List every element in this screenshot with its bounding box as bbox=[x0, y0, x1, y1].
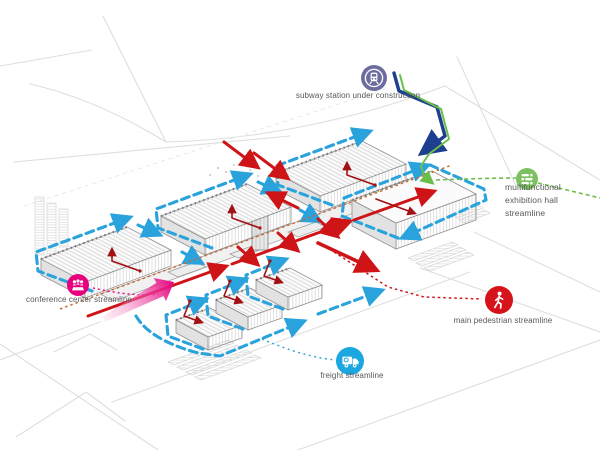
train-icon bbox=[361, 65, 387, 91]
conference-streamline-badge bbox=[67, 274, 89, 296]
freight-streamline-label: freight streamline bbox=[272, 371, 432, 380]
pedestrian-streamline-label: main pedestrian streamline bbox=[423, 316, 583, 325]
conference-streamline-label: conference center streamline bbox=[0, 295, 159, 304]
audience-icon bbox=[67, 274, 89, 296]
diagram-canvas bbox=[0, 0, 600, 450]
pedestrian-icon bbox=[485, 286, 513, 314]
subway-station-badge bbox=[361, 65, 387, 91]
tree-dots bbox=[209, 164, 259, 177]
subway-station-label: subway station under construction bbox=[268, 91, 448, 100]
streamline-diagram: subway station under construction multif… bbox=[0, 0, 600, 450]
exhibition-streamline-label: multifunctional exhibition hall streamli… bbox=[505, 181, 595, 220]
pedestrian-streamline-badge bbox=[485, 286, 513, 314]
